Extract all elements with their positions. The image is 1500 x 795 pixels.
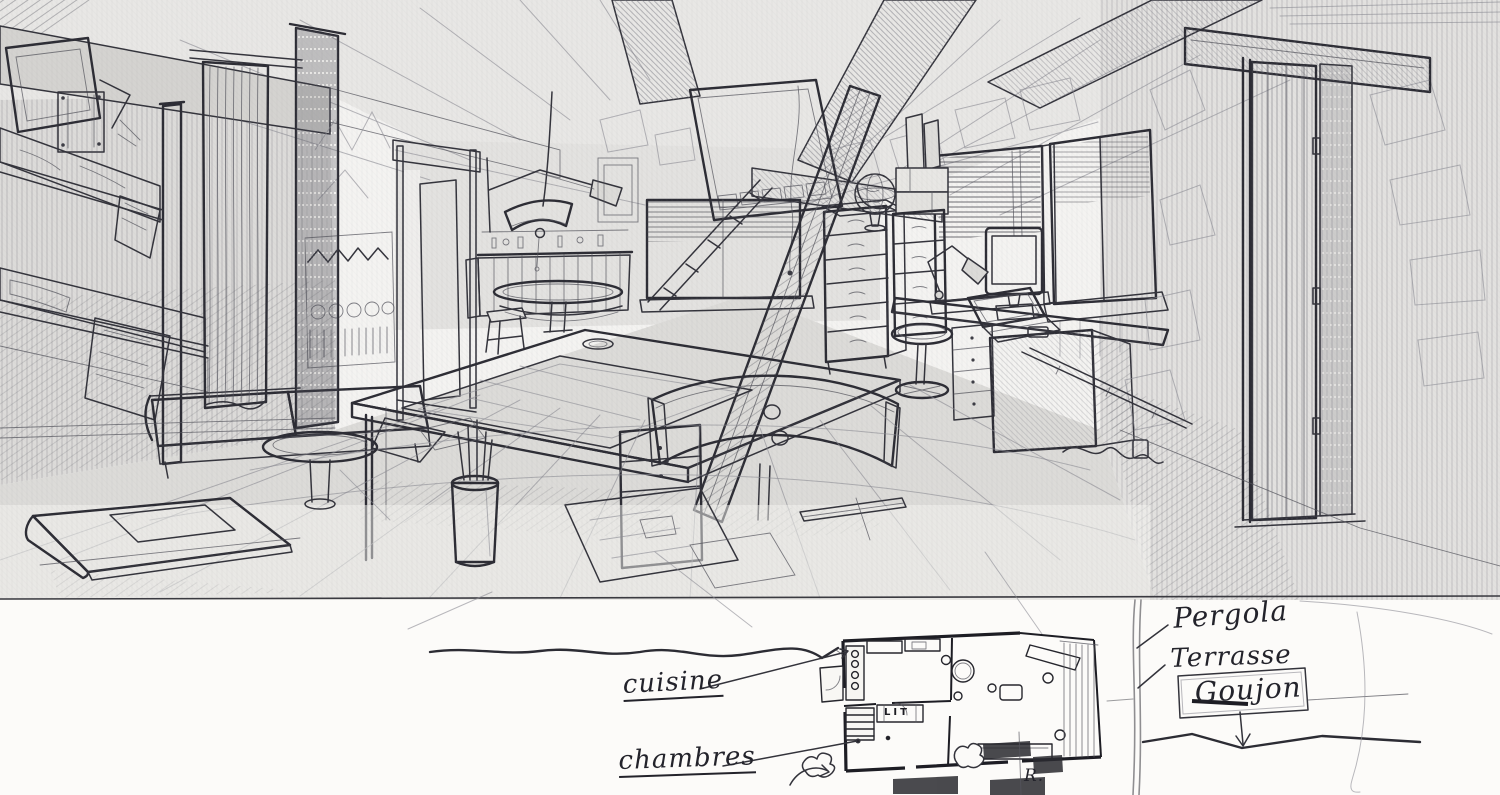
graphite-texture-2: [0, 0, 1500, 598]
label-signature: Goujon: [1194, 670, 1302, 709]
label-terrasse: Terrasse: [1170, 640, 1292, 674]
label-cuisine: cuisine: [622, 665, 724, 702]
label-chambres: chambres: [618, 741, 756, 778]
plan-stairs: [846, 708, 874, 740]
label-r-note: R.: [1024, 766, 1044, 786]
sketch-page: cuisine chambres Pergola Terrasse Goujon…: [0, 0, 1500, 795]
label-lit: LIT: [884, 707, 910, 718]
